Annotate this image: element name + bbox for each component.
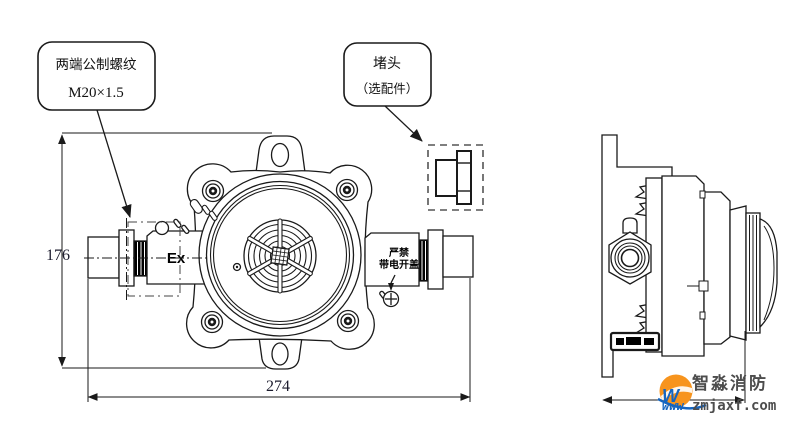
screw-icon xyxy=(337,180,358,201)
optional-plug xyxy=(428,145,483,210)
dimension-width-label: 274 xyxy=(266,378,290,395)
front-view: Ex 严禁 带电开盖 xyxy=(46,133,473,402)
watermark-url-prefix: www xyxy=(662,399,684,413)
dimension-height-label: 176 xyxy=(46,247,70,264)
watermark: W 智淼消防 www zmjaxf.com xyxy=(658,373,776,414)
warning-text-line2: 带电开盖 xyxy=(379,258,419,271)
screw-icon xyxy=(202,312,223,333)
screw-icon xyxy=(338,311,359,332)
side-view xyxy=(602,135,777,403)
detector-head xyxy=(730,206,777,340)
front-section xyxy=(704,192,730,344)
callout-plug: 堵头 （选配件） xyxy=(344,43,431,141)
right-cable-gland xyxy=(419,230,473,289)
plug-part xyxy=(436,151,471,204)
watermark-brand: 智淼消防 xyxy=(692,373,768,393)
screw-icon xyxy=(203,181,224,202)
callout-thread: 两端公制螺纹 M20×1.5 xyxy=(38,42,155,217)
watermark-url: zmjaxf.com xyxy=(692,398,776,414)
grille-center-mesh xyxy=(271,247,289,265)
drawing-canvas: Ex 严禁 带电开盖 xyxy=(0,0,786,428)
callout-plug-line1: 堵头 xyxy=(373,56,401,72)
body-profile xyxy=(662,176,704,356)
label-plate xyxy=(611,333,659,350)
callout-plug-line2: （选配件） xyxy=(356,82,419,96)
right-thread-icon xyxy=(419,240,428,281)
warning-text-line1: 严禁 xyxy=(388,246,409,259)
technical-drawing: Ex 严禁 带电开盖 xyxy=(0,0,786,428)
callout-thread-line2: M20×1.5 xyxy=(68,85,124,101)
callout-thread-line1: 两端公制螺纹 xyxy=(56,57,137,72)
